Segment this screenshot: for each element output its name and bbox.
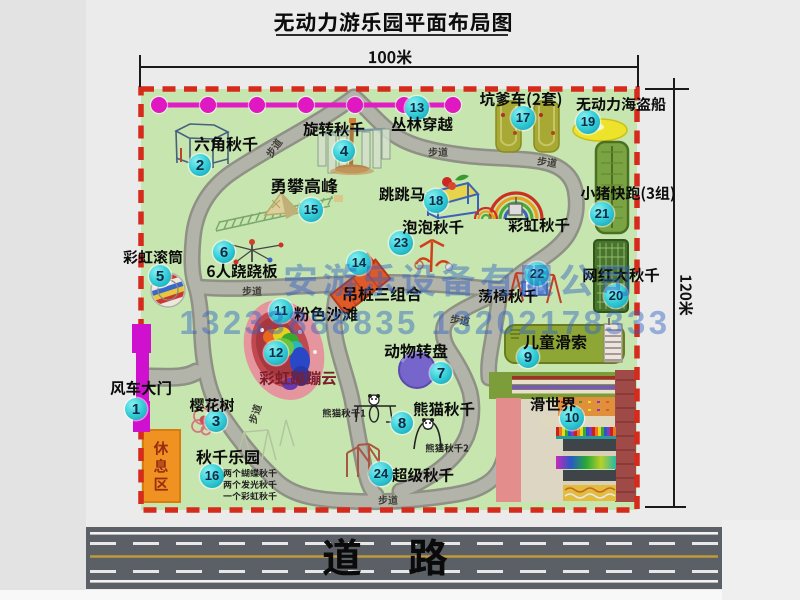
svg-text:3: 3 [212, 413, 220, 430]
svg-text:12: 12 [269, 345, 283, 360]
svg-text:16: 16 [205, 468, 219, 483]
svg-text:24: 24 [374, 466, 389, 481]
svg-text:13233888835 13202178333: 13233888835 13202178333 [179, 304, 670, 341]
svg-text:1: 1 [132, 401, 140, 418]
svg-text:4: 4 [340, 143, 349, 160]
svg-text:5: 5 [156, 268, 164, 285]
svg-text:17: 17 [516, 110, 530, 125]
svg-text:15: 15 [304, 202, 318, 217]
svg-text:23: 23 [394, 235, 408, 250]
svg-text:21: 21 [595, 206, 609, 221]
svg-text:18: 18 [429, 193, 443, 208]
svg-text:8: 8 [398, 415, 406, 432]
svg-text:19: 19 [581, 114, 595, 129]
svg-text:7: 7 [437, 365, 445, 382]
svg-text:2: 2 [196, 157, 204, 174]
svg-text:6: 6 [220, 244, 228, 261]
svg-text:9: 9 [524, 349, 532, 366]
svg-text:13: 13 [410, 100, 424, 115]
svg-text:10: 10 [565, 410, 579, 425]
